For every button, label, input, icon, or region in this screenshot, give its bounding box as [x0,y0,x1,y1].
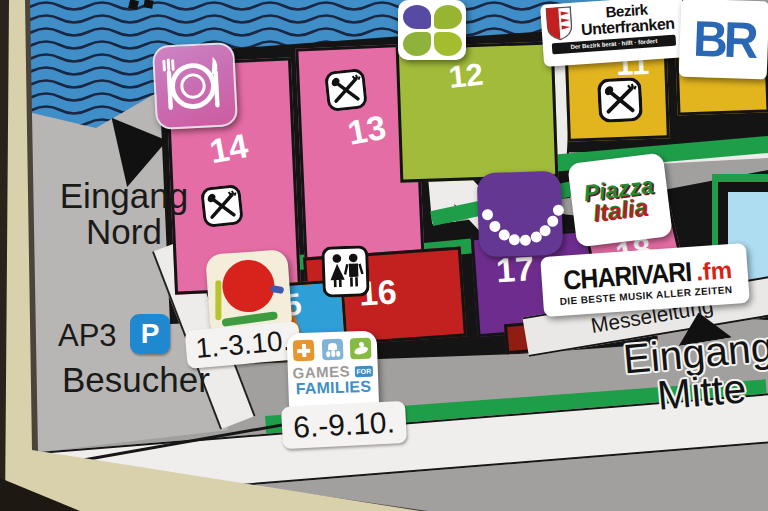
piazza-italia-sticker: Piazza Italia [567,152,673,247]
crossed-cutlery-icon [324,68,368,112]
label-ap3: AP3 [58,318,117,354]
red-circle [221,258,277,314]
br-logo-sticker: BR [679,0,768,80]
restaurant-icon [152,42,238,130]
games-mini-icons [287,337,378,361]
necklace-dots [477,171,564,258]
hall-12: 12 [396,41,559,182]
games-icon-cross [293,340,315,362]
label-eingang-nord-line1: Eingang [26,178,222,214]
coat-of-arms-icon [545,6,573,42]
date-label-late: 6.-9.10. [281,401,407,449]
charivari-suffix: .fm [695,255,733,284]
crossed-cutlery-icon [200,184,244,228]
cropped-label-fragment [143,0,153,9]
label-besucher: Besucher [62,360,210,400]
games-icon-meeple [350,338,372,360]
label-eingang-nord-line2: Nord [26,214,222,250]
label-eingang-mitte: Eingang Mitte [612,327,768,419]
clover-petal [434,32,462,56]
crossed-cutlery-icon [597,77,643,123]
fairground-map-photo: 14 13 12 11 10 16 17 15 18 Messeleitung … [0,0,768,511]
clover-logo-icon [398,0,466,60]
hall-number: 13 [345,110,388,150]
pearl-necklace-icon [477,171,564,258]
parking-icon: P [130,314,170,354]
br-logo-text: BR [692,9,755,69]
bezirk-unterfranken-sticker: Bezirk Unterfranken Der Bezirk berät · h… [540,0,686,67]
family-icon [321,245,370,298]
games-word2: FAMILIES [288,378,379,398]
clover-petal [403,5,431,29]
piazza-line2: Italia [593,196,650,224]
green-stroke-left [215,280,221,320]
games-icon-castle [321,339,343,361]
clover-petal [434,5,462,29]
parking-letter: P [141,318,160,350]
hall-number: 14 [207,128,250,168]
date-text: 1.-3.10. [194,325,291,365]
hall-number: 12 [447,59,485,93]
label-eingang-nord: Eingang Nord [26,178,222,249]
games-word-for: FOR [354,366,373,378]
clover-petal [403,32,431,56]
date-text: 6.-9.10. [292,405,395,444]
cutlery-plate-glyph [154,44,232,124]
